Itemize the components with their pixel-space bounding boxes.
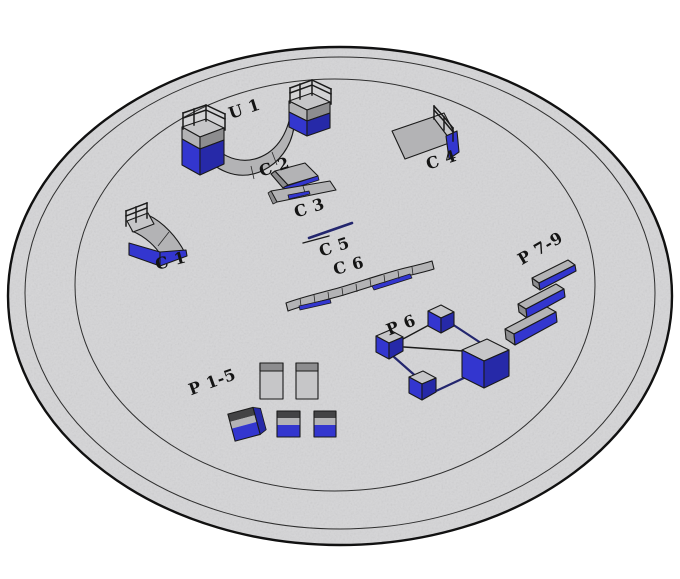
- skatepark-plan-stage: U 1 C 1 C 4: [0, 0, 680, 579]
- p4-cube: [277, 411, 300, 437]
- p1-tall-box: [260, 363, 283, 399]
- skatepark-scene: U 1 C 1 C 4: [0, 0, 680, 579]
- p2-tall-box: [296, 363, 318, 399]
- p5-cube: [314, 411, 336, 437]
